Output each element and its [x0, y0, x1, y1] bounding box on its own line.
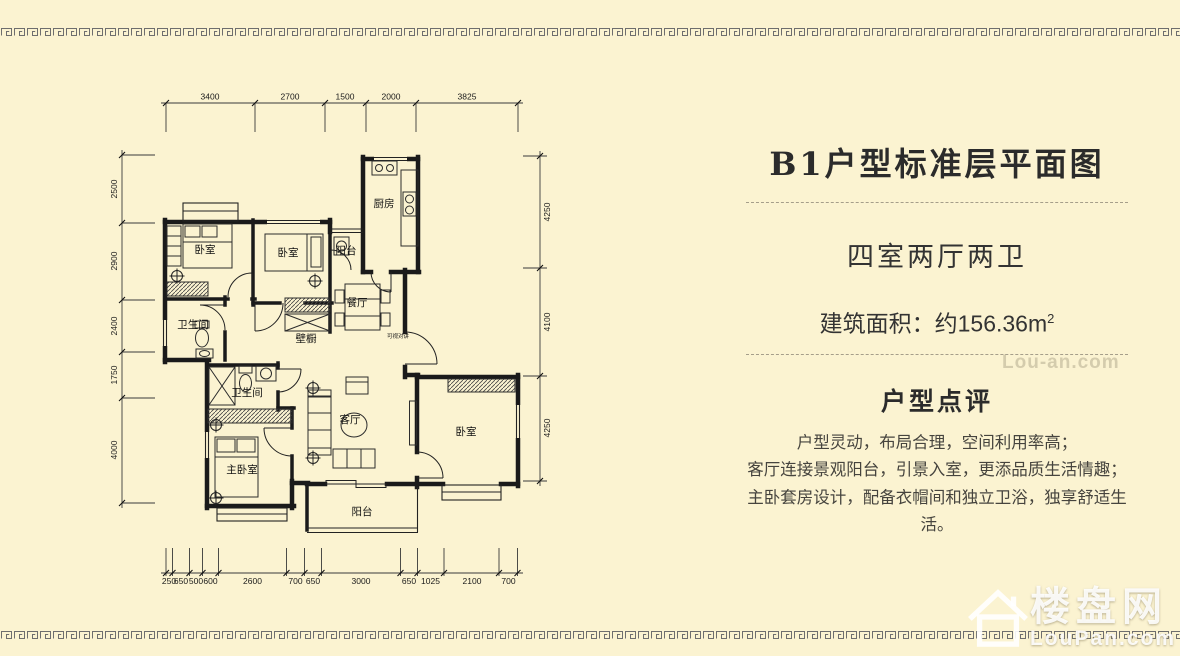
dim-bottom: 2600: [243, 576, 262, 586]
dimension-labels: 3400 2700 1500 2000 3825 2500 2900 2400 …: [109, 92, 552, 587]
dim-bottom: 650: [306, 576, 320, 586]
floor-plan: 3400 2700 1500 2000 3825 2500 2900 2400 …: [95, 80, 565, 615]
dimension-ticks: [119, 100, 543, 576]
watermark-domain: LouPan.com: [1030, 628, 1176, 650]
building-area-sup: 2: [1047, 311, 1054, 326]
room-label-bedroom2: 卧室: [278, 246, 299, 259]
room-label-kitchen: 厨房: [374, 197, 395, 210]
dim-top: 2700: [281, 92, 300, 102]
faint-watermark: Lou-an.com: [1002, 352, 1120, 374]
dim-left: 4000: [109, 440, 119, 459]
room-label-bath2: 卫生间: [231, 386, 263, 399]
house-logo-icon: [966, 582, 1030, 650]
review-text: 户型灵动，布局合理，空间利用率高； 客厅连接景观阳台，引景入室，更添品质生活情趣…: [742, 430, 1132, 540]
review-line: 户型灵动，布局合理，空间利用率高；: [742, 430, 1132, 458]
room-label-balcony-south: 阳台: [352, 505, 373, 518]
dim-top: 3825: [458, 92, 477, 102]
dim-bottom: 700: [501, 576, 515, 586]
dim-bottom: 650: [174, 576, 188, 586]
dim-top: 1500: [336, 92, 355, 102]
room-label-living: 客厅: [340, 413, 361, 426]
plan-title: B1户型标准层平面图: [742, 142, 1132, 186]
layout-type: 四室两厅两卫: [742, 241, 1132, 273]
building-area-text: 建筑面积：约156.36m: [820, 311, 1048, 337]
dim-left: 2900: [109, 251, 119, 270]
room-label-bedroom3: 卧室: [456, 425, 477, 438]
dim-left: 1750: [109, 365, 119, 384]
room-label-bath1: 卫生间: [177, 318, 209, 331]
dim-bottom: 700: [288, 576, 302, 586]
building-area: 建筑面积：约156.36m2: [742, 305, 1132, 338]
review-line: 主卧套房设计，配备衣帽间和独立卫浴，独享舒适生活。: [742, 485, 1132, 540]
dim-right: 4250: [542, 202, 552, 221]
outer-walls: [165, 157, 518, 508]
review-title: 户型点评: [742, 385, 1132, 418]
room-label-master-bedroom: 主卧室: [226, 463, 258, 476]
info-panel: B1户型标准层平面图 四室两厅两卫 建筑面积：约156.36m2 户型点评 户型…: [742, 142, 1132, 540]
dim-bottom: 500: [189, 576, 203, 586]
dim-right: 4100: [542, 312, 552, 331]
dim-bottom: 600: [203, 576, 217, 586]
dim-top: 3400: [201, 92, 220, 102]
room-label-dining: 餐厅: [347, 296, 368, 309]
dim-bottom: 2100: [463, 576, 482, 586]
room-label-bedroom1: 卧室: [195, 243, 216, 256]
dim-left: 2500: [109, 179, 119, 198]
dim-bottom: 1025: [421, 576, 440, 586]
site-watermark: 楼盘网 LouPan.com: [966, 582, 1176, 650]
dim-right: 4250: [542, 418, 552, 437]
watermark-name: 楼盘网: [1030, 586, 1168, 628]
review-line: 客厅连接景观阳台，引景入室，更添品质生活情趣；: [742, 457, 1132, 485]
dim-top: 2000: [382, 92, 401, 102]
dimension-lines: [122, 103, 547, 576]
furniture: [167, 161, 515, 506]
dim-bottom: 3000: [352, 576, 371, 586]
dim-left: 2400: [109, 316, 119, 335]
windows: [164, 158, 520, 533]
dim-bottom: 650: [402, 576, 416, 586]
intercom-label: 可视对讲: [387, 332, 410, 340]
room-label-balcony-north: 阳台: [336, 244, 357, 257]
dashed-divider: [746, 202, 1128, 203]
greek-key-border-top: [0, 24, 1180, 34]
room-label-closet: 壁橱: [296, 332, 317, 345]
